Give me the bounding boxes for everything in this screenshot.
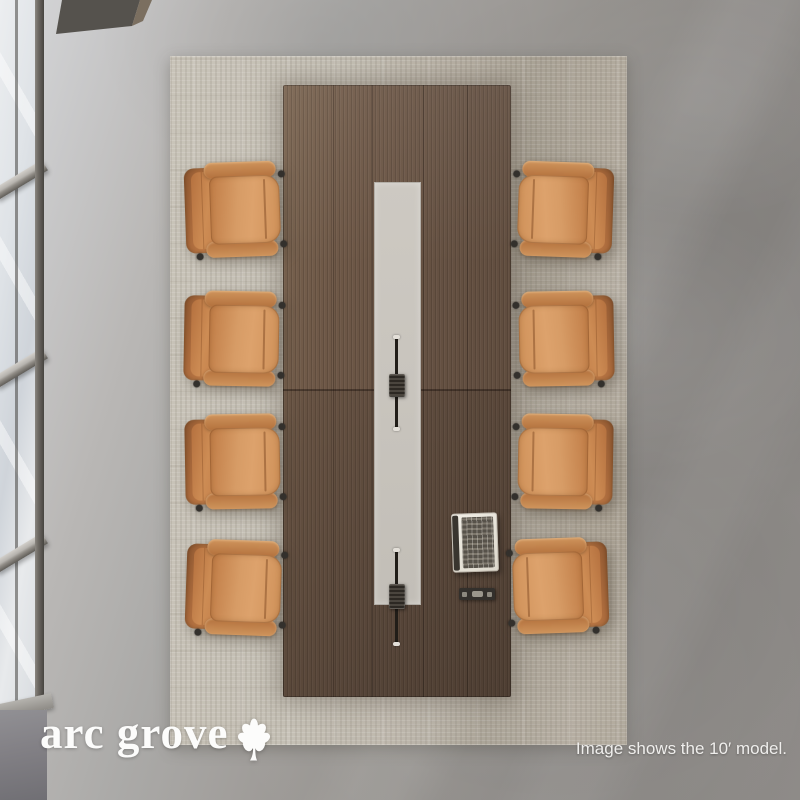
caster-wheel bbox=[196, 505, 203, 512]
conference-chair bbox=[184, 538, 287, 636]
conference-table bbox=[283, 85, 511, 697]
caster-wheel bbox=[513, 170, 520, 177]
outlet-socket bbox=[472, 591, 483, 597]
caster-wheel bbox=[511, 240, 518, 247]
conference-chair bbox=[506, 536, 609, 634]
table-plank-seam bbox=[333, 85, 334, 697]
chair-body bbox=[184, 413, 286, 510]
chair-body bbox=[513, 290, 615, 387]
chair-seat bbox=[517, 427, 588, 496]
table-plank-seam bbox=[467, 85, 468, 697]
caster-wheel bbox=[598, 380, 605, 387]
chair-seat bbox=[518, 305, 589, 374]
caster-wheel bbox=[280, 240, 287, 247]
caster-wheel bbox=[514, 372, 521, 379]
caster-wheel bbox=[512, 302, 519, 309]
power-module bbox=[389, 584, 405, 609]
power-outlet-strip bbox=[459, 588, 495, 600]
brand-name: arc grove bbox=[40, 711, 229, 756]
conference-room-photo: arc grove Image shows the 10′ model. bbox=[0, 0, 800, 800]
caster-wheel bbox=[279, 302, 286, 309]
conference-chair bbox=[512, 413, 614, 510]
caster-wheel bbox=[511, 493, 518, 500]
caster-wheel bbox=[513, 423, 520, 430]
caster-wheel bbox=[278, 423, 285, 430]
caster-wheel bbox=[506, 550, 513, 557]
model-caption: Image shows the 10′ model. bbox=[576, 739, 787, 759]
table-plank-seam bbox=[372, 85, 373, 697]
ceiling-soffit bbox=[0, 0, 170, 42]
conference-chair bbox=[183, 160, 286, 258]
caster-wheel bbox=[277, 372, 284, 379]
caster-wheel bbox=[280, 493, 287, 500]
cable-channel bbox=[374, 182, 421, 605]
table-plank-seam bbox=[423, 85, 424, 697]
window-wall bbox=[0, 0, 48, 800]
chair-body bbox=[511, 160, 614, 258]
chair-seat bbox=[512, 551, 584, 621]
console-keypad bbox=[461, 516, 495, 568]
chair-body bbox=[183, 160, 286, 258]
leaf-icon bbox=[238, 718, 270, 762]
caster-wheel bbox=[193, 380, 200, 387]
chair-seat bbox=[208, 305, 279, 374]
caster-wheel bbox=[595, 505, 602, 512]
chair-body bbox=[183, 290, 285, 387]
chair-body bbox=[506, 536, 609, 634]
caster-wheel bbox=[508, 620, 515, 627]
chair-body bbox=[512, 413, 614, 510]
brand-logo: arc grove bbox=[40, 711, 270, 762]
window-frame bbox=[35, 0, 44, 714]
console-handset bbox=[452, 516, 460, 571]
conference-chair bbox=[184, 413, 286, 510]
caster-wheel bbox=[278, 170, 285, 177]
chair-seat bbox=[209, 174, 281, 244]
chair-seat bbox=[209, 427, 280, 496]
conference-chair bbox=[183, 290, 285, 387]
conference-chair bbox=[513, 290, 615, 387]
chair-seat bbox=[210, 553, 282, 623]
window-glazing-bar bbox=[15, 0, 18, 712]
power-module bbox=[389, 374, 405, 397]
outlet-button bbox=[462, 592, 467, 597]
outlet-button bbox=[487, 592, 492, 597]
conference-chair bbox=[511, 160, 614, 258]
chair-seat bbox=[517, 174, 589, 244]
chair-body bbox=[184, 538, 287, 636]
conference-console bbox=[451, 512, 499, 573]
